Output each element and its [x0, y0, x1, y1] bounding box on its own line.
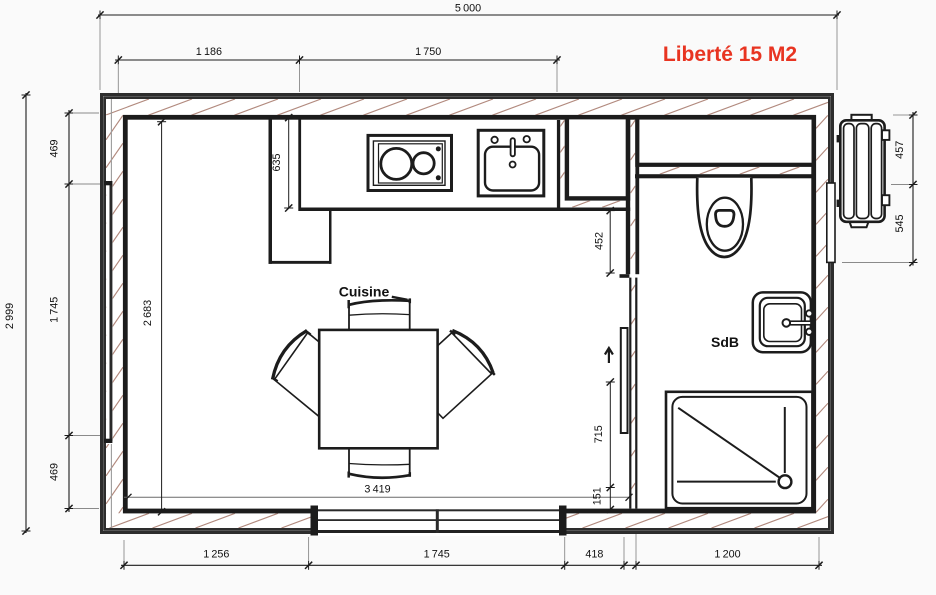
svg-text:545: 545	[894, 214, 906, 232]
svg-text:1 745: 1 745	[49, 297, 61, 323]
svg-text:3 419: 3 419	[364, 484, 390, 496]
svg-text:1 750: 1 750	[415, 46, 441, 58]
svg-text:1 745: 1 745	[424, 549, 450, 561]
svg-text:452: 452	[594, 232, 606, 250]
svg-text:469: 469	[49, 139, 61, 157]
svg-text:1 186: 1 186	[196, 46, 222, 58]
svg-text:151: 151	[591, 487, 603, 505]
svg-text:Liberté 15 M2: Liberté 15 M2	[663, 43, 797, 66]
svg-text:418: 418	[585, 549, 603, 561]
svg-text:2 683: 2 683	[142, 300, 154, 326]
svg-text:469: 469	[49, 463, 61, 481]
svg-text:5 000: 5 000	[455, 3, 481, 15]
svg-text:2 999: 2 999	[4, 303, 16, 329]
svg-text:715: 715	[593, 425, 605, 443]
svg-text:SdB: SdB	[711, 334, 739, 350]
svg-text:457: 457	[894, 141, 906, 159]
svg-text:Cuisine: Cuisine	[339, 284, 390, 300]
svg-text:1 256: 1 256	[203, 549, 229, 561]
svg-text:1 200: 1 200	[714, 549, 740, 561]
svg-text:635: 635	[271, 153, 283, 171]
